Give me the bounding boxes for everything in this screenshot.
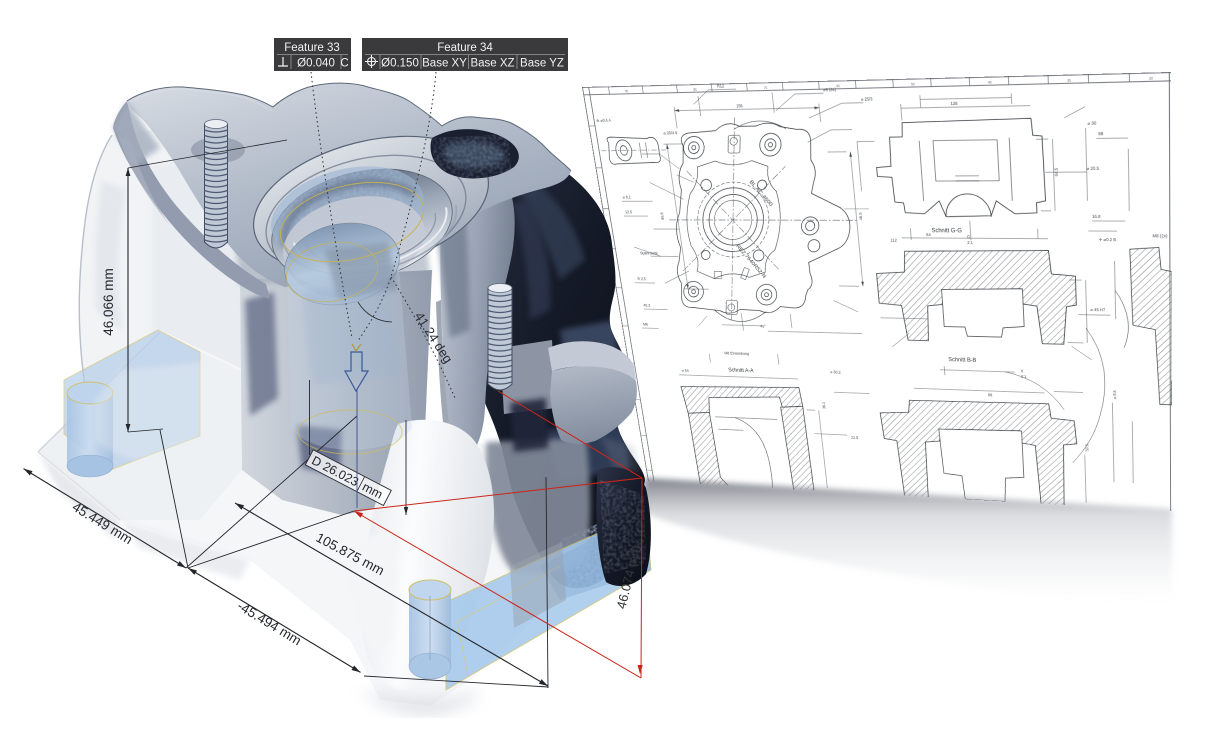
svg-text:Feature 34: Feature 34	[437, 42, 493, 54]
svg-text:Base XZ: Base XZ	[470, 58, 514, 70]
svg-text:Ø0.150: Ø0.150	[381, 58, 419, 70]
svg-text:-45.494 mm: -45.494 mm	[235, 598, 304, 648]
svg-text:C: C	[340, 58, 348, 70]
svg-text:Ø0.040: Ø0.040	[297, 58, 335, 70]
svg-text:Feature 33: Feature 33	[284, 42, 340, 54]
svg-text:Base YZ: Base YZ	[520, 58, 564, 70]
svg-text:46.066 mm: 46.066 mm	[101, 268, 116, 336]
svg-text:Base XY: Base XY	[422, 58, 467, 70]
